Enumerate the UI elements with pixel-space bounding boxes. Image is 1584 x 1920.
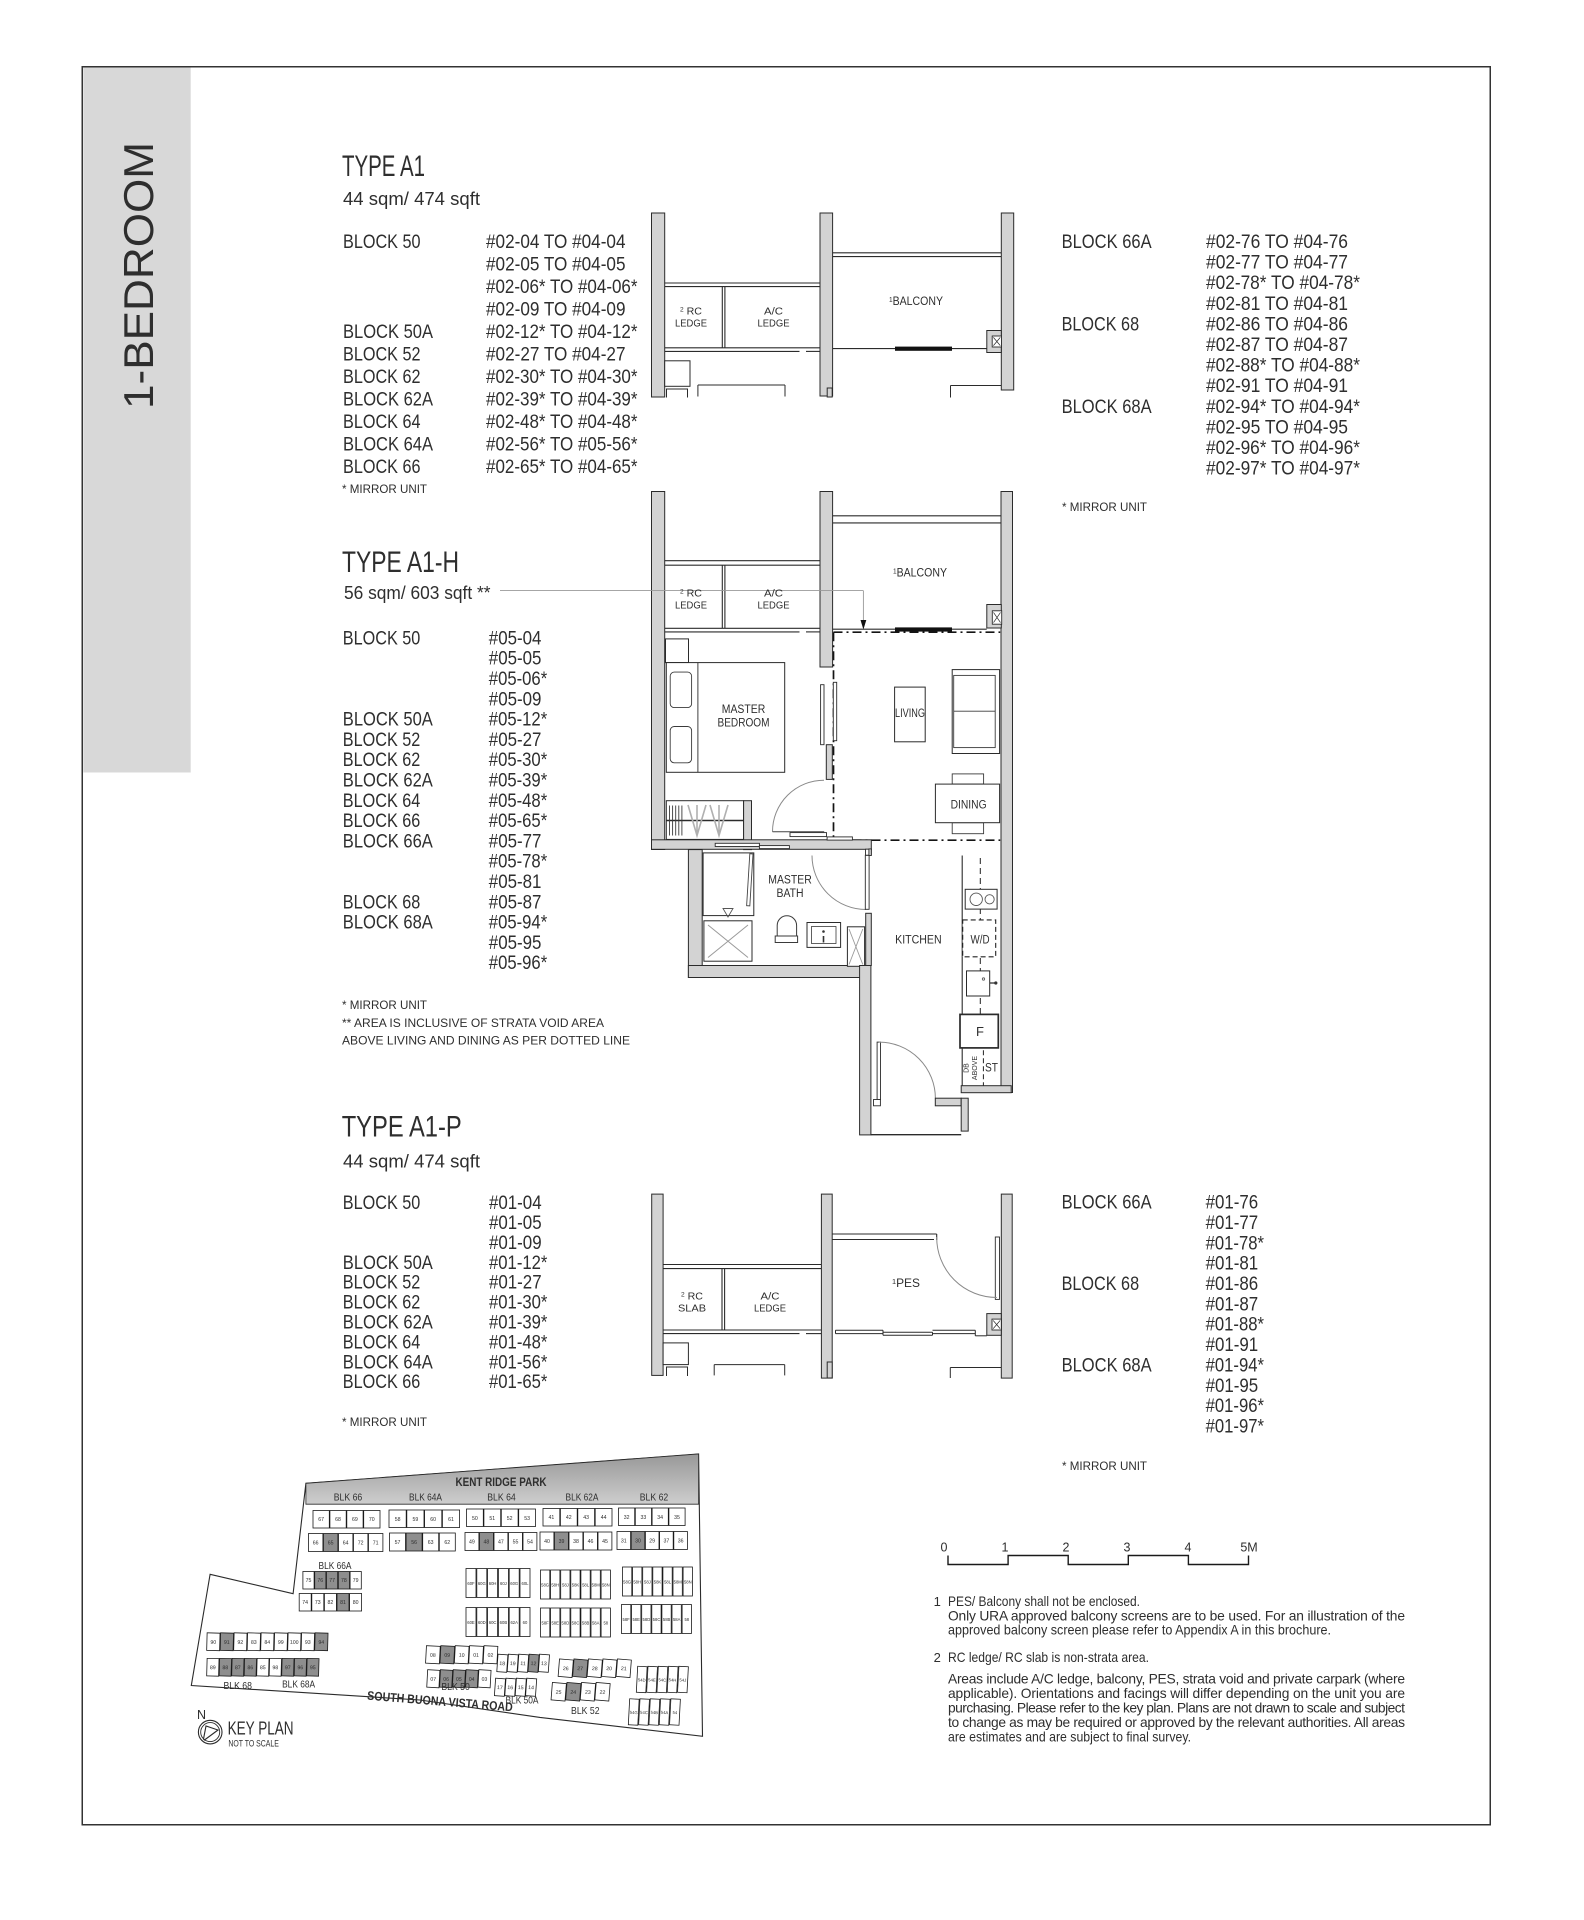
svg-text:#02-39* TO #04-39*: #02-39* TO #04-39* <box>486 390 638 411</box>
svg-text:BLOCK 50: BLOCK 50 <box>343 232 421 253</box>
svg-text:#01-96*: #01-96* <box>1206 1396 1265 1417</box>
svg-text:13: 13 <box>541 1661 547 1667</box>
svg-text:58L: 58L <box>664 1580 672 1585</box>
svg-text:BLOCK 68A: BLOCK 68A <box>1062 1355 1152 1376</box>
svg-text:ABOVE: ABOVE <box>972 1056 979 1080</box>
svg-text:#02-04 TO #04-04: #02-04 TO #04-04 <box>486 232 626 253</box>
svg-text:30: 30 <box>635 1539 641 1545</box>
svg-text:#01-27: #01-27 <box>489 1273 542 1294</box>
svg-text:LEDGE: LEDGE <box>758 318 790 330</box>
svg-text:* MIRROR UNIT: * MIRROR UNIT <box>342 482 428 496</box>
svg-text:applicable). Orientations and: applicable). Orientations and facings wi… <box>948 1686 1405 1701</box>
svg-text:86: 86 <box>247 1665 253 1671</box>
svg-text:10: 10 <box>459 1653 465 1659</box>
svg-text:58J: 58J <box>562 1583 569 1588</box>
svg-text:BLOCK 68: BLOCK 68 <box>1062 314 1140 335</box>
svg-text:#01-39*: #01-39* <box>489 1313 548 1334</box>
svg-text:58G: 58G <box>541 1583 549 1588</box>
svg-text:58B: 58B <box>582 1621 590 1626</box>
svg-text:12: 12 <box>530 1661 536 1667</box>
svg-text:LEDGE: LEDGE <box>758 600 790 612</box>
svg-text:85: 85 <box>260 1665 266 1671</box>
svg-text:92: 92 <box>237 1640 243 1646</box>
svg-text:48: 48 <box>484 1540 490 1546</box>
svg-text:#02-78* TO #04-78*: #02-78* TO #04-78* <box>1206 273 1361 294</box>
svg-text:* MIRROR UNIT: * MIRROR UNIT <box>342 1415 428 1429</box>
svg-text:BLK 64: BLK 64 <box>487 1492 516 1504</box>
svg-text:F: F <box>976 1024 984 1039</box>
svg-text:BLOCK 62A: BLOCK 62A <box>343 390 433 411</box>
svg-text:73: 73 <box>315 1600 321 1606</box>
svg-text:#02-09 TO #04-09: #02-09 TO #04-09 <box>486 300 626 321</box>
svg-text:68: 68 <box>335 1517 341 1523</box>
svg-text:50: 50 <box>472 1516 478 1522</box>
svg-text:98: 98 <box>272 1665 278 1671</box>
svg-text:2 RC: 2 RC <box>681 1291 703 1303</box>
svg-text:60G: 60G <box>478 1581 486 1586</box>
svg-text:75: 75 <box>306 1578 312 1584</box>
svg-text:27: 27 <box>577 1666 583 1672</box>
svg-text:62: 62 <box>444 1540 450 1546</box>
svg-text:54D: 54D <box>638 1677 646 1682</box>
svg-text:KEY PLAN: KEY PLAN <box>228 1718 294 1739</box>
svg-text:BLOCK 50A: BLOCK 50A <box>343 1253 433 1274</box>
svg-text:88: 88 <box>222 1665 228 1671</box>
svg-text:#01-78*: #01-78* <box>1206 1233 1265 1254</box>
svg-text:#01-94*: #01-94* <box>1206 1355 1265 1376</box>
svg-text:58K: 58K <box>572 1583 580 1588</box>
svg-text:01: 01 <box>473 1653 479 1659</box>
svg-text:are estimates and are subject: are estimates and are subject to final s… <box>948 1730 1191 1745</box>
svg-text:58J: 58J <box>644 1580 651 1585</box>
svg-text:54C: 54C <box>658 1677 666 1682</box>
svg-text:TYPE A1-P: TYPE A1-P <box>342 1110 462 1143</box>
svg-text:26: 26 <box>563 1666 569 1672</box>
svg-text:1: 1 <box>934 1594 941 1609</box>
svg-text:#02-96* TO #04-96*: #02-96* TO #04-96* <box>1206 438 1361 459</box>
svg-text:BLOCK 64A: BLOCK 64A <box>343 435 433 456</box>
svg-text:57: 57 <box>395 1540 401 1546</box>
svg-text:BLK 52: BLK 52 <box>571 1705 600 1717</box>
svg-text:#01-91: #01-91 <box>1206 1335 1259 1356</box>
svg-text:#01-87: #01-87 <box>1206 1294 1259 1315</box>
svg-text:38: 38 <box>573 1539 579 1545</box>
svg-text:60: 60 <box>523 1620 528 1625</box>
svg-text:BLOCK 50: BLOCK 50 <box>343 628 421 649</box>
svg-text:#05-30*: #05-30* <box>489 750 548 771</box>
svg-text:03: 03 <box>481 1677 487 1683</box>
svg-text:94: 94 <box>318 1640 324 1646</box>
svg-text:#05-12*: #05-12* <box>489 710 548 731</box>
svg-text:#05-09: #05-09 <box>489 689 542 710</box>
svg-text:#05-77: #05-77 <box>489 831 542 852</box>
svg-text:#05-04: #05-04 <box>489 628 542 649</box>
svg-text:#02-86 TO #04-86: #02-86 TO #04-86 <box>1206 314 1348 335</box>
svg-text:58F: 58F <box>622 1617 630 1622</box>
svg-text:#01-97*: #01-97* <box>1206 1416 1265 1437</box>
svg-text:58: 58 <box>603 1621 608 1626</box>
svg-text:ABOVE LIVING AND DINING AS PER: ABOVE LIVING AND DINING AS PER DOTTED LI… <box>342 1034 630 1048</box>
svg-text:58D: 58D <box>562 1621 570 1626</box>
svg-text:A/C: A/C <box>761 1291 780 1303</box>
svg-text:MASTER: MASTER <box>722 704 766 716</box>
svg-text:#01-77: #01-77 <box>1206 1213 1259 1234</box>
svg-text:56 sqm/ 603 sqft **: 56 sqm/ 603 sqft ** <box>344 583 491 603</box>
svg-text:to change as may be required o: to change as may be required or approved… <box>948 1715 1405 1730</box>
svg-text:100: 100 <box>290 1640 299 1646</box>
svg-text:#02-88* TO #04-88*: #02-88* TO #04-88* <box>1206 356 1361 377</box>
svg-text:* MIRROR UNIT: * MIRROR UNIT <box>342 998 428 1012</box>
svg-text:#02-06* TO #04-06*: #02-06* TO #04-06* <box>486 277 638 298</box>
svg-text:58C: 58C <box>572 1621 580 1626</box>
svg-text:02: 02 <box>487 1653 493 1659</box>
svg-text:43: 43 <box>583 1515 589 1521</box>
svg-text:#05-87: #05-87 <box>489 892 542 913</box>
svg-text:60L: 60L <box>522 1581 530 1586</box>
svg-text:BLOCK 66: BLOCK 66 <box>343 457 421 478</box>
svg-text:58N: 58N <box>602 1583 610 1588</box>
svg-text:BEDROOM: BEDROOM <box>718 718 770 730</box>
svg-text:67: 67 <box>318 1517 324 1523</box>
svg-text:60C: 60C <box>489 1620 497 1625</box>
svg-text:47: 47 <box>498 1540 504 1546</box>
svg-text:BLOCK 66A: BLOCK 66A <box>343 831 433 852</box>
svg-text:4: 4 <box>1185 1541 1192 1555</box>
svg-text:#05-06*: #05-06* <box>489 669 548 690</box>
svg-text:2: 2 <box>934 1650 941 1665</box>
svg-text:BATH: BATH <box>777 888 804 900</box>
svg-text:BLOCK 68: BLOCK 68 <box>343 892 421 913</box>
svg-text:07: 07 <box>430 1677 436 1683</box>
svg-text:BLOCK 64: BLOCK 64 <box>343 412 421 433</box>
svg-text:56: 56 <box>411 1540 417 1546</box>
svg-text:3: 3 <box>1124 1541 1131 1555</box>
svg-text:58A: 58A <box>592 1621 600 1626</box>
svg-text:#05-78*: #05-78* <box>489 852 548 873</box>
svg-text:#01-48*: #01-48* <box>489 1332 548 1353</box>
svg-text:BLOCK 62A: BLOCK 62A <box>343 771 433 792</box>
svg-text:53: 53 <box>524 1516 530 1522</box>
svg-text:#05-94*: #05-94* <box>489 913 548 934</box>
svg-text:BLK 68: BLK 68 <box>223 1680 252 1692</box>
svg-text:purchasing. Please refer to th: purchasing. Please refer to the key plan… <box>948 1701 1405 1716</box>
svg-text:2: 2 <box>1063 1541 1070 1555</box>
svg-text:44: 44 <box>601 1515 607 1521</box>
svg-text:60F: 60F <box>467 1581 475 1586</box>
svg-text:W/D: W/D <box>971 935 990 947</box>
svg-text:DINING: DINING <box>951 800 987 812</box>
svg-text:44 sqm/ 474 sqft: 44 sqm/ 474 sqft <box>343 189 480 209</box>
svg-text:#01-95: #01-95 <box>1206 1376 1259 1397</box>
svg-text:1: 1 <box>1002 1541 1009 1555</box>
svg-text:#05-95: #05-95 <box>489 933 542 954</box>
svg-text:66: 66 <box>313 1541 319 1547</box>
svg-text:#02-65* TO #04-65*: #02-65* TO #04-65* <box>486 457 638 478</box>
svg-text:34: 34 <box>657 1515 663 1521</box>
svg-text:31: 31 <box>621 1539 627 1545</box>
svg-text:LIVING: LIVING <box>895 708 925 720</box>
svg-text:1PES: 1PES <box>892 1278 920 1290</box>
svg-text:58H: 58H <box>633 1580 641 1585</box>
svg-text:79: 79 <box>353 1578 359 1584</box>
svg-text:2 RC: 2 RC <box>680 306 702 318</box>
svg-text:99: 99 <box>278 1640 284 1646</box>
svg-text:MASTER: MASTER <box>768 875 812 887</box>
svg-text:BLOCK 62: BLOCK 62 <box>343 1293 421 1314</box>
svg-text:#02-81 TO #04-81: #02-81 TO #04-81 <box>1206 294 1348 315</box>
svg-text:#05-81: #05-81 <box>489 872 542 893</box>
svg-text:DB: DB <box>964 1063 971 1073</box>
svg-text:#01-88*: #01-88* <box>1206 1315 1265 1336</box>
svg-text:#05-39*: #05-39* <box>489 771 548 792</box>
svg-text:78: 78 <box>341 1578 347 1584</box>
svg-text:46: 46 <box>588 1539 594 1545</box>
svg-text:#02-97* TO #04-97*: #02-97* TO #04-97* <box>1206 459 1361 480</box>
svg-text:18: 18 <box>499 1661 505 1667</box>
svg-text:60H: 60H <box>489 1581 497 1586</box>
svg-text:N: N <box>197 1708 206 1722</box>
svg-text:BLOCK 50A: BLOCK 50A <box>343 710 433 731</box>
svg-text:BLOCK 50: BLOCK 50 <box>343 1193 421 1214</box>
svg-text:BLK 66A: BLK 66A <box>319 1560 352 1572</box>
svg-text:RC ledge/ RC slab is non-strat: RC ledge/ RC slab is non-strata area. <box>948 1650 1149 1665</box>
svg-text:5M: 5M <box>1240 1541 1257 1555</box>
svg-text:BLOCK 64A: BLOCK 64A <box>343 1352 433 1373</box>
svg-text:23: 23 <box>585 1690 591 1696</box>
svg-text:08: 08 <box>430 1653 436 1659</box>
svg-text:90: 90 <box>210 1640 216 1646</box>
svg-text:58F: 58F <box>541 1621 549 1626</box>
svg-text:45: 45 <box>602 1539 608 1545</box>
svg-text:41: 41 <box>549 1515 555 1521</box>
svg-text:74: 74 <box>302 1600 308 1606</box>
svg-text:96: 96 <box>297 1665 303 1671</box>
svg-text:58H: 58H <box>551 1583 559 1588</box>
svg-text:#02-77 TO #04-77: #02-77 TO #04-77 <box>1206 253 1348 274</box>
svg-text:TYPE A1-H: TYPE A1-H <box>342 546 459 579</box>
svg-text:58: 58 <box>395 1517 401 1523</box>
svg-text:BLOCK 62: BLOCK 62 <box>343 750 421 771</box>
svg-text:approved balcony screen please: approved balcony screen please refer to … <box>948 1622 1331 1637</box>
svg-text:BLOCK 64: BLOCK 64 <box>343 1332 421 1353</box>
svg-text:BLOCK 68A: BLOCK 68A <box>1062 397 1152 418</box>
svg-text:82: 82 <box>328 1600 334 1606</box>
svg-text:60G: 60G <box>510 1581 518 1586</box>
svg-text:91: 91 <box>224 1640 230 1646</box>
svg-text:BLOCK 66: BLOCK 66 <box>343 1372 421 1393</box>
svg-text:#01-56*: #01-56* <box>489 1352 548 1373</box>
svg-text:#05-65*: #05-65* <box>489 811 548 832</box>
svg-text:#01-30*: #01-30* <box>489 1293 548 1314</box>
svg-text:39: 39 <box>559 1539 565 1545</box>
svg-text:58E: 58E <box>551 1621 559 1626</box>
svg-text:54: 54 <box>527 1540 533 1546</box>
svg-text:35: 35 <box>674 1515 680 1521</box>
svg-text:25: 25 <box>556 1690 562 1696</box>
svg-text:BLOCK 62A: BLOCK 62A <box>343 1313 433 1334</box>
svg-text:1BALCONY: 1BALCONY <box>889 296 943 308</box>
svg-text:71: 71 <box>373 1541 379 1547</box>
svg-text:54H: 54H <box>669 1677 677 1682</box>
svg-text:97: 97 <box>285 1665 291 1671</box>
svg-text:77: 77 <box>329 1578 335 1584</box>
svg-text:15: 15 <box>518 1685 524 1691</box>
svg-text:* MIRROR UNIT: * MIRROR UNIT <box>1062 500 1148 514</box>
svg-text:89: 89 <box>210 1665 216 1671</box>
svg-text:11: 11 <box>520 1661 526 1667</box>
svg-text:24: 24 <box>570 1690 576 1696</box>
svg-text:55: 55 <box>513 1540 519 1546</box>
svg-text:LEDGE: LEDGE <box>675 318 707 330</box>
svg-text:19: 19 <box>510 1661 516 1667</box>
svg-text:BLOCK 52: BLOCK 52 <box>343 1273 421 1294</box>
svg-text:49: 49 <box>469 1540 475 1546</box>
svg-text:#01-81: #01-81 <box>1206 1254 1259 1275</box>
svg-text:54E: 54E <box>648 1677 656 1682</box>
svg-text:#01-05: #01-05 <box>489 1213 542 1234</box>
svg-text:54B: 54B <box>650 1710 658 1715</box>
svg-text:#01-09: #01-09 <box>489 1233 542 1254</box>
svg-text:LEDGE: LEDGE <box>754 1303 786 1315</box>
svg-text:58K: 58K <box>654 1580 662 1585</box>
svg-text:ST: ST <box>985 1063 998 1075</box>
svg-text:14: 14 <box>528 1685 534 1691</box>
svg-text:58M: 58M <box>592 1583 601 1588</box>
svg-text:61: 61 <box>448 1517 454 1523</box>
svg-text:#02-30* TO #04-30*: #02-30* TO #04-30* <box>486 367 638 388</box>
svg-text:87: 87 <box>235 1665 241 1671</box>
svg-text:#02-27 TO #04-27: #02-27 TO #04-27 <box>486 345 626 366</box>
svg-text:#02-48* TO #04-48*: #02-48* TO #04-48* <box>486 412 638 433</box>
svg-text:17: 17 <box>497 1685 503 1691</box>
svg-text:#02-95 TO #04-95: #02-95 TO #04-95 <box>1206 417 1348 438</box>
svg-text:65: 65 <box>328 1541 334 1547</box>
svg-text:#05-27: #05-27 <box>489 730 542 751</box>
svg-text:BLK 68A: BLK 68A <box>282 1679 315 1691</box>
svg-text:BLK 62A: BLK 62A <box>566 1492 599 1504</box>
svg-text:63: 63 <box>428 1540 434 1546</box>
svg-text:NOT TO SCALE: NOT TO SCALE <box>228 1739 279 1750</box>
svg-text:1BALCONY: 1BALCONY <box>893 568 947 580</box>
svg-text:72: 72 <box>358 1541 364 1547</box>
svg-text:58E: 58E <box>632 1617 640 1622</box>
svg-text:37: 37 <box>664 1539 670 1545</box>
svg-text:60B: 60B <box>500 1620 508 1625</box>
svg-text:#05-96*: #05-96* <box>489 953 548 974</box>
svg-text:58D: 58D <box>643 1617 651 1622</box>
svg-text:60J: 60J <box>500 1581 507 1586</box>
svg-text:29: 29 <box>649 1539 655 1545</box>
svg-text:#01-86: #01-86 <box>1206 1274 1259 1295</box>
svg-text:58A: 58A <box>673 1617 681 1622</box>
svg-text:58C: 58C <box>653 1617 661 1622</box>
svg-text:BLOCK 66A: BLOCK 66A <box>1062 232 1152 253</box>
svg-text:16: 16 <box>507 1685 513 1691</box>
svg-text:#02-12* TO #04-12*: #02-12* TO #04-12* <box>486 322 638 343</box>
svg-text:20: 20 <box>606 1666 612 1672</box>
svg-text:BLOCK 68: BLOCK 68 <box>1062 1274 1140 1295</box>
svg-text:PES/ Balcony shall not be encl: PES/ Balcony shall not be enclosed. <box>948 1594 1140 1609</box>
svg-text:KITCHEN: KITCHEN <box>895 935 942 947</box>
svg-text:60: 60 <box>430 1517 436 1523</box>
svg-text:#01-76: #01-76 <box>1206 1193 1259 1214</box>
svg-text:#02-56* TO #05-56*: #02-56* TO #05-56* <box>486 435 638 456</box>
svg-text:44 sqm/ 474 sqft: 44 sqm/ 474 sqft <box>343 1152 480 1172</box>
svg-text:64: 64 <box>343 1541 349 1547</box>
svg-text:52: 52 <box>507 1516 513 1522</box>
svg-text:#05-05: #05-05 <box>489 649 542 670</box>
svg-text:#02-76 TO #04-76: #02-76 TO #04-76 <box>1206 232 1348 253</box>
svg-text:#01-04: #01-04 <box>489 1193 542 1214</box>
svg-text:22: 22 <box>599 1690 605 1696</box>
svg-text:81: 81 <box>340 1600 346 1606</box>
svg-text:KENT RIDGE PARK: KENT RIDGE PARK <box>456 1475 547 1489</box>
svg-text:BLOCK 52: BLOCK 52 <box>343 730 421 751</box>
svg-text:33: 33 <box>641 1515 647 1521</box>
svg-text:58: 58 <box>684 1617 689 1622</box>
svg-text:58M: 58M <box>674 1580 683 1585</box>
svg-text:#01-65*: #01-65* <box>489 1372 548 1393</box>
svg-text:42: 42 <box>566 1515 572 1521</box>
svg-text:58B: 58B <box>663 1617 671 1622</box>
svg-text:BLOCK 66A: BLOCK 66A <box>1062 1193 1152 1214</box>
svg-text:A/C: A/C <box>764 306 783 318</box>
svg-text:60D: 60D <box>478 1620 486 1625</box>
svg-text:84: 84 <box>264 1640 270 1646</box>
svg-text:BLK 66: BLK 66 <box>334 1492 363 1504</box>
svg-text:BLK 50: BLK 50 <box>441 1681 470 1693</box>
svg-text:58L: 58L <box>582 1583 590 1588</box>
svg-text:BLK 64A: BLK 64A <box>409 1492 442 1504</box>
svg-text:0: 0 <box>941 1541 948 1555</box>
svg-text:51: 51 <box>489 1516 495 1522</box>
svg-text:BLOCK 66: BLOCK 66 <box>343 811 421 832</box>
svg-text:58N: 58N <box>684 1580 692 1585</box>
svg-text:54A: 54A <box>661 1710 669 1715</box>
svg-text:60E: 60E <box>467 1620 475 1625</box>
svg-text:1-BEDROOM: 1-BEDROOM <box>115 142 162 409</box>
svg-text:36: 36 <box>678 1539 684 1545</box>
svg-text:Areas include A/C ledge, balco: Areas include A/C ledge, balcony, PES, s… <box>948 1672 1405 1687</box>
svg-text:2 RC: 2 RC <box>680 588 702 600</box>
svg-text:** AREA IS INCLUSIVE OF STRATA: ** AREA IS INCLUSIVE OF STRATA VOID AREA <box>342 1016 604 1030</box>
svg-text:BLOCK 68A: BLOCK 68A <box>343 913 433 934</box>
svg-text:54J: 54J <box>679 1677 686 1682</box>
svg-text:21: 21 <box>621 1666 627 1672</box>
svg-text:#02-87 TO #04-87: #02-87 TO #04-87 <box>1206 335 1348 356</box>
svg-text:40: 40 <box>544 1539 550 1545</box>
svg-text:95: 95 <box>310 1665 316 1671</box>
svg-text:58G: 58G <box>623 1580 631 1585</box>
svg-text:#02-05 TO #04-05: #02-05 TO #04-05 <box>486 255 626 276</box>
svg-text:62A: 62A <box>510 1620 518 1625</box>
svg-text:70: 70 <box>369 1517 375 1523</box>
svg-text:BLOCK 52: BLOCK 52 <box>343 345 421 366</box>
svg-text:BLK 62: BLK 62 <box>640 1492 669 1504</box>
svg-text:* MIRROR UNIT: * MIRROR UNIT <box>1062 1459 1148 1473</box>
svg-text:83: 83 <box>251 1640 257 1646</box>
svg-text:BLOCK 64: BLOCK 64 <box>343 791 421 812</box>
svg-text:LEDGE: LEDGE <box>675 600 707 612</box>
svg-text:93: 93 <box>305 1640 311 1646</box>
svg-text:09: 09 <box>444 1653 450 1659</box>
svg-text:80: 80 <box>353 1600 359 1606</box>
svg-text:#05-48*: #05-48* <box>489 791 548 812</box>
svg-text:BLOCK 62: BLOCK 62 <box>343 367 421 388</box>
svg-text:SLAB: SLAB <box>678 1303 706 1315</box>
svg-text:A/C: A/C <box>764 588 783 600</box>
svg-text:BLOCK 50A: BLOCK 50A <box>343 322 433 343</box>
